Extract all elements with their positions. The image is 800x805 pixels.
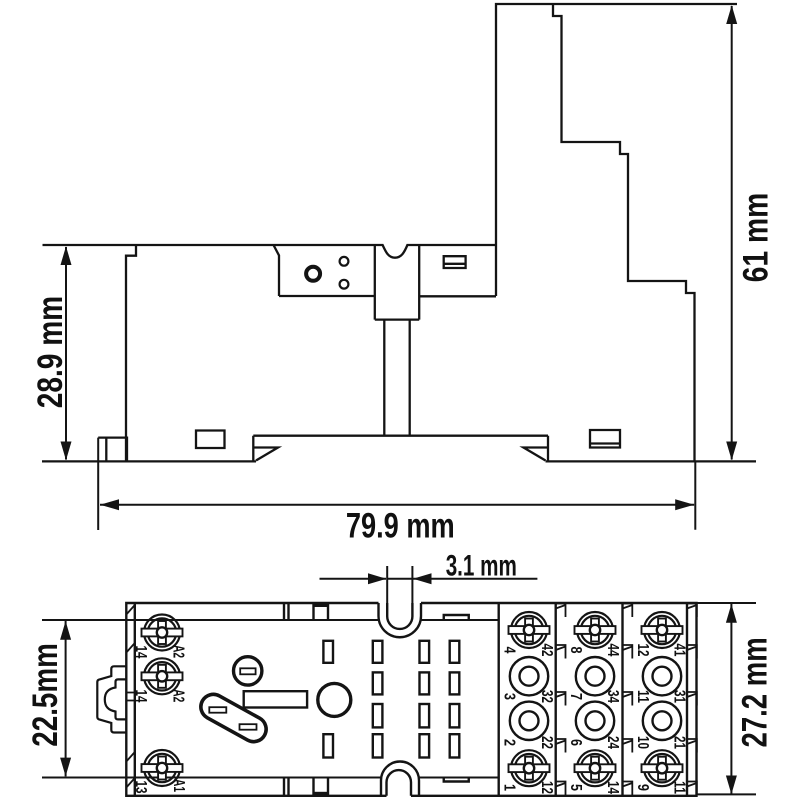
- svg-text:61 mm: 61 mm: [736, 193, 775, 282]
- svg-text:3.1 mm: 3.1 mm: [446, 549, 517, 582]
- svg-text:10: 10: [634, 736, 651, 749]
- svg-text:41: 41: [671, 644, 688, 657]
- svg-text:12: 12: [538, 781, 555, 794]
- svg-text:13: 13: [132, 781, 149, 794]
- svg-text:34: 34: [604, 690, 621, 703]
- svg-text:6: 6: [567, 739, 584, 746]
- svg-text:11: 11: [671, 781, 688, 794]
- svg-text:2: 2: [501, 739, 518, 746]
- svg-text:31: 31: [671, 690, 688, 703]
- svg-text:8: 8: [567, 647, 584, 654]
- svg-text:1: 1: [501, 784, 518, 791]
- svg-text:A2: A2: [170, 645, 187, 658]
- svg-text:27.2 mm: 27.2 mm: [736, 637, 775, 747]
- svg-text:42: 42: [538, 644, 555, 657]
- svg-text:11: 11: [634, 690, 651, 703]
- svg-text:12: 12: [634, 644, 651, 657]
- svg-text:14: 14: [604, 781, 621, 794]
- svg-text:24: 24: [604, 736, 621, 749]
- svg-text:14: 14: [132, 690, 149, 703]
- svg-text:9: 9: [634, 784, 651, 791]
- svg-text:14: 14: [132, 646, 149, 659]
- svg-text:32: 32: [538, 690, 555, 703]
- svg-text:79.9 mm: 79.9 mm: [346, 507, 455, 546]
- svg-text:A2: A2: [170, 689, 187, 702]
- svg-text:28.9 mm: 28.9 mm: [31, 296, 70, 408]
- svg-text:22: 22: [538, 736, 555, 749]
- svg-text:7: 7: [567, 693, 584, 700]
- svg-text:22.5mm: 22.5mm: [26, 643, 65, 747]
- svg-text:4: 4: [501, 647, 518, 654]
- svg-text:5: 5: [567, 784, 584, 791]
- svg-text:21: 21: [671, 736, 688, 749]
- svg-text:A1: A1: [170, 779, 187, 792]
- svg-text:44: 44: [604, 644, 621, 657]
- svg-text:3: 3: [501, 693, 518, 700]
